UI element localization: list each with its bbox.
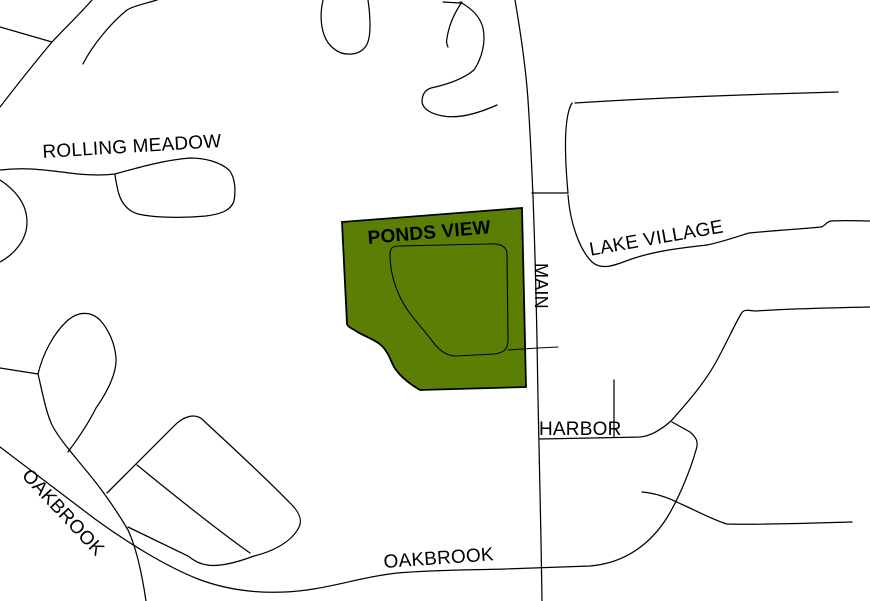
map-viewport[interactable]: ROLLING MEADOWPONDS VIEWLAKE VILLAGEMAIN… bbox=[0, 0, 870, 601]
street-label-harbor: HARBOR bbox=[539, 420, 622, 441]
street-label-ponds-view: PONDS VIEW bbox=[367, 218, 492, 250]
street-label-main: MAIN bbox=[530, 263, 550, 309]
street-label-lake-village: LAKE VILLAGE bbox=[588, 217, 725, 261]
street-label-oakbrook-sw: OAKBROOK bbox=[17, 466, 108, 561]
street-label-oakbrook-s: OAKBROOK bbox=[383, 545, 495, 574]
street-label-rolling-meadow: ROLLING MEADOW bbox=[42, 132, 222, 164]
street-label-layer: ROLLING MEADOWPONDS VIEWLAKE VILLAGEMAIN… bbox=[0, 0, 870, 601]
